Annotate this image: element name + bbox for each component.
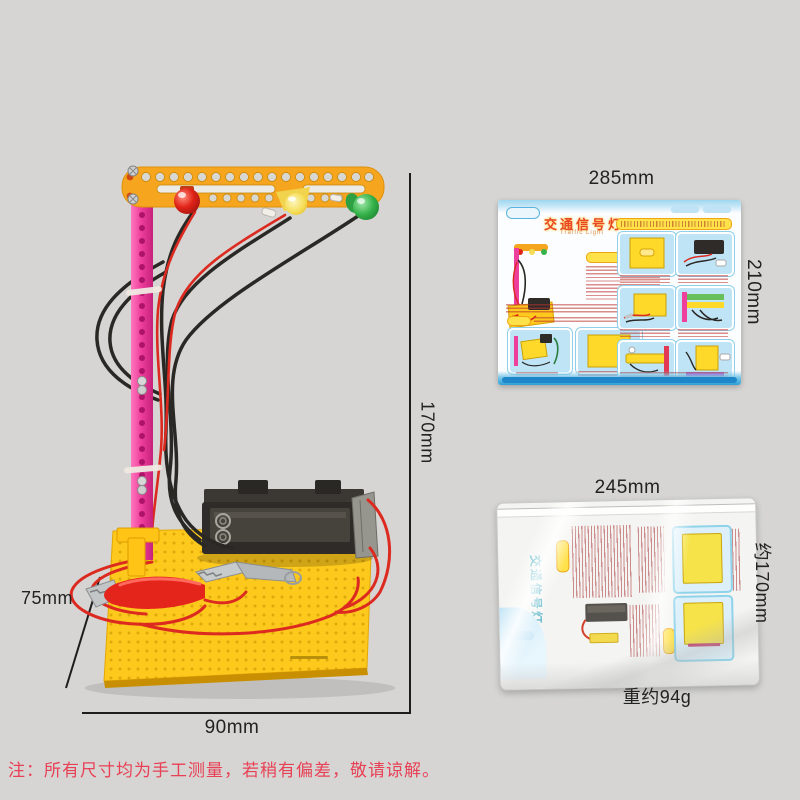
bag-sheet-battery-image [577,599,634,648]
manual-caption [678,329,728,337]
manual-subtitle: Traffic Light [560,230,604,236]
dimension-label-height: 170mm [417,398,438,468]
traffic-light-model-illustration [0,0,460,760]
manual-caption [678,275,728,283]
signal-arm [122,166,384,207]
wire-connector [261,207,276,218]
bag-sheet-text [572,525,633,598]
manual-header-pill [671,206,699,213]
package-height-label: 约170mm [750,537,776,629]
manual-steps-banner [616,218,732,230]
package-width-label: 245mm [580,477,675,499]
bag-sheet-image-box [672,525,733,594]
bag-seam [497,503,755,517]
dimension-label-depth: 75mm [14,588,80,609]
instruction-manual: 交通信号灯 Traffic Light [498,200,741,385]
bag-sheet-pill [556,540,570,572]
product-photo: 170mm 75mm 90mm 285mm 210mm 交通信号灯 Traffi… [0,0,800,800]
bag-sheet-text [638,526,665,593]
manual-parts-box [508,328,572,374]
manual-step-box [676,232,734,276]
bag-sheet-cover-pill [508,631,534,641]
bag-sheet-text [732,529,742,591]
disclaimer-note: 注：所有尺寸均为手工测量，若稍有偏差，敬请谅解。 [8,756,788,781]
packaging-bag: 交通信号灯 [496,497,758,688]
dimension-label-width: 90mm [196,717,268,739]
package-weight-label: 重约94g [612,683,702,709]
manual-section-pill [507,316,531,326]
manual-step-box [618,232,676,276]
bag-sheet-image-box [673,595,734,662]
manual-width-label: 285mm [574,168,669,190]
bag-sheet-text [629,604,660,657]
manual-caption [620,275,670,283]
manual-logo-badge [506,207,540,219]
pole [124,203,162,560]
manual-caption [620,329,670,337]
manual-header-pill [703,206,731,213]
manual-step-box [618,286,676,330]
battery-holder [197,480,378,567]
manual-footer-bar [502,377,737,383]
manual-height-label: 210mm [742,257,764,327]
manual-step-box [676,286,734,330]
